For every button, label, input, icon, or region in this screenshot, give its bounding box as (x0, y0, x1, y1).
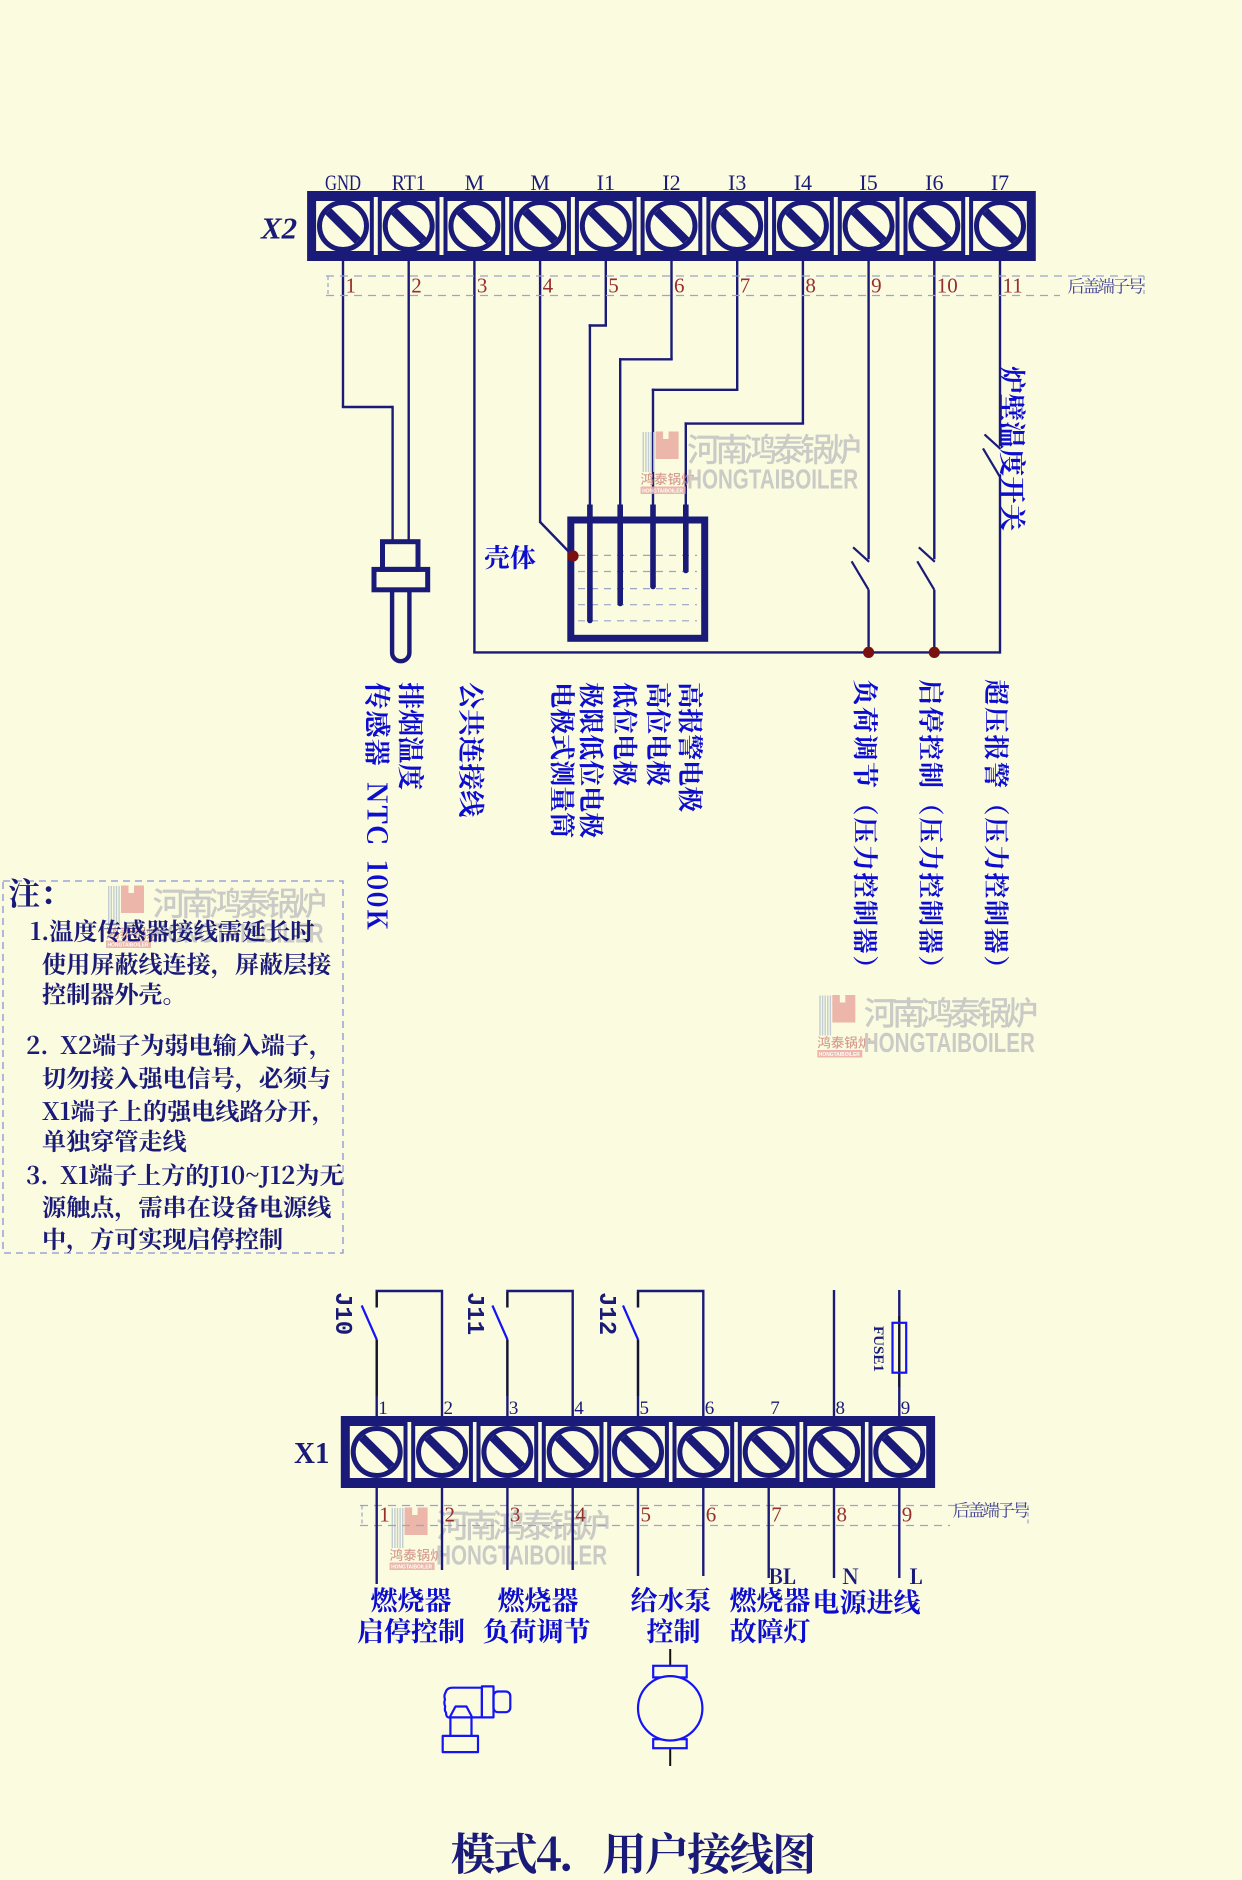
svg-text:6: 6 (674, 274, 685, 298)
svg-text:7: 7 (740, 274, 751, 298)
svg-text:1: 1 (346, 274, 357, 298)
svg-text:HONGTAIBOILER: HONGTAIBOILER (819, 1052, 860, 1058)
svg-text:4: 4 (574, 1398, 584, 1419)
svg-text:HONGTAIBOILER: HONGTAIBOILER (642, 489, 683, 495)
svg-text:8: 8 (836, 1398, 846, 1419)
svg-text:3: 3 (510, 1503, 521, 1527)
svg-text:9: 9 (901, 1398, 911, 1419)
svg-text:2: 2 (445, 1503, 456, 1527)
svg-text:M: M (465, 170, 485, 195)
svg-text:X1: X1 (294, 1435, 330, 1470)
svg-text:HONGTAIBOILER: HONGTAIBOILER (687, 464, 858, 495)
svg-text:7: 7 (771, 1503, 782, 1527)
svg-text:X2: X2 (260, 211, 297, 246)
svg-text:I5: I5 (859, 170, 877, 195)
svg-text:4: 4 (575, 1503, 586, 1527)
svg-text:8: 8 (805, 274, 816, 298)
svg-text:J11: J11 (460, 1292, 487, 1335)
svg-text:6: 6 (705, 1398, 715, 1419)
svg-text:HONGTAIBOILER: HONGTAIBOILER (391, 1565, 432, 1571)
svg-text:7: 7 (770, 1398, 780, 1419)
svg-text:10: 10 (937, 274, 958, 298)
svg-text:4: 4 (543, 274, 554, 298)
svg-text:9: 9 (871, 274, 882, 298)
svg-text:J12: J12 (592, 1292, 619, 1335)
svg-text:2: 2 (411, 274, 422, 298)
svg-text:I1: I1 (597, 170, 615, 195)
svg-text:HONGTAIBOILER: HONGTAIBOILER (864, 1027, 1035, 1058)
svg-text:HONGTAIBOILER: HONGTAIBOILER (436, 1540, 607, 1571)
svg-text:3: 3 (477, 274, 488, 298)
svg-text:I6: I6 (925, 170, 943, 195)
svg-text:5: 5 (608, 274, 619, 298)
svg-text:5: 5 (640, 1398, 650, 1419)
svg-text:8: 8 (837, 1503, 848, 1527)
svg-text:1: 1 (379, 1503, 390, 1527)
svg-text:11: 11 (1003, 274, 1023, 298)
svg-text:1: 1 (378, 1398, 388, 1419)
svg-text:GND: GND (325, 170, 361, 195)
svg-text:RT1: RT1 (392, 170, 426, 195)
svg-text:I4: I4 (794, 170, 812, 195)
svg-text:I3: I3 (728, 170, 746, 195)
svg-text:9: 9 (902, 1503, 913, 1527)
svg-text:J10: J10 (328, 1292, 355, 1335)
svg-text:I7: I7 (991, 170, 1009, 195)
svg-text:2: 2 (444, 1398, 454, 1419)
svg-text:FUSE1: FUSE1 (870, 1326, 886, 1372)
svg-text:3: 3 (509, 1398, 519, 1419)
svg-text:M: M (530, 170, 550, 195)
svg-text:6: 6 (706, 1503, 717, 1527)
svg-text:HONGTAIBOILER: HONGTAIBOILER (108, 943, 149, 949)
svg-text:I2: I2 (662, 170, 680, 195)
svg-text:5: 5 (641, 1503, 652, 1527)
